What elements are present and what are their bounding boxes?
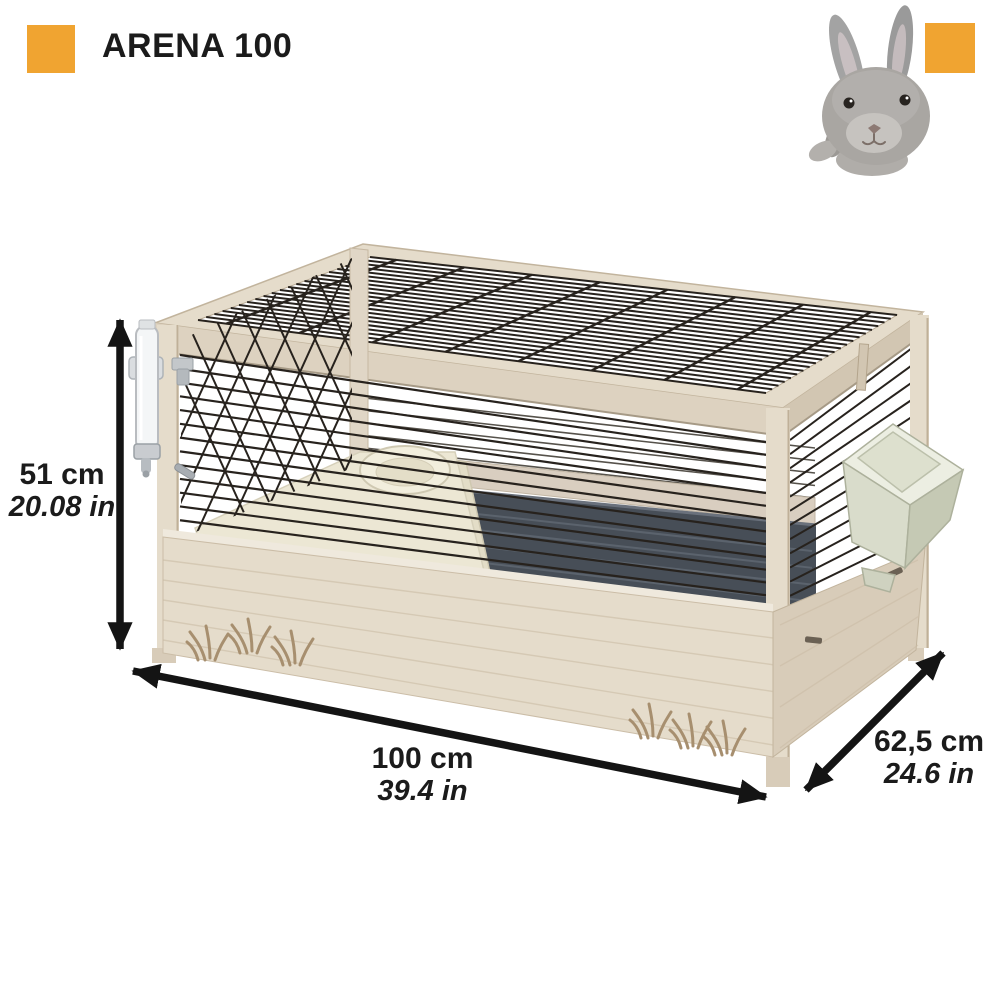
width-cm: 100 cm [300,743,545,775]
product-title: ARENA 100 [102,27,292,66]
height-cm: 51 cm [0,459,124,491]
cage-illustration [0,0,963,787]
water-bottle [129,320,163,478]
width-in: 39.4 in [300,775,545,807]
rabbit-photo [806,4,930,176]
depth-in: 24.6 in [850,758,1000,790]
product-dimension-diagram: ARENA 100 [0,0,1000,1000]
scene-canvas [0,0,1000,1000]
dimension-label-depth: 62,5 cm 24.6 in [850,726,1000,790]
hay-feeder [843,424,963,592]
height-in: 20.08 in [0,491,124,523]
depth-cm: 62,5 cm [850,726,1000,758]
dimension-label-height: 51 cm 20.08 in [0,459,124,523]
dimension-label-width: 100 cm 39.4 in [300,743,545,807]
